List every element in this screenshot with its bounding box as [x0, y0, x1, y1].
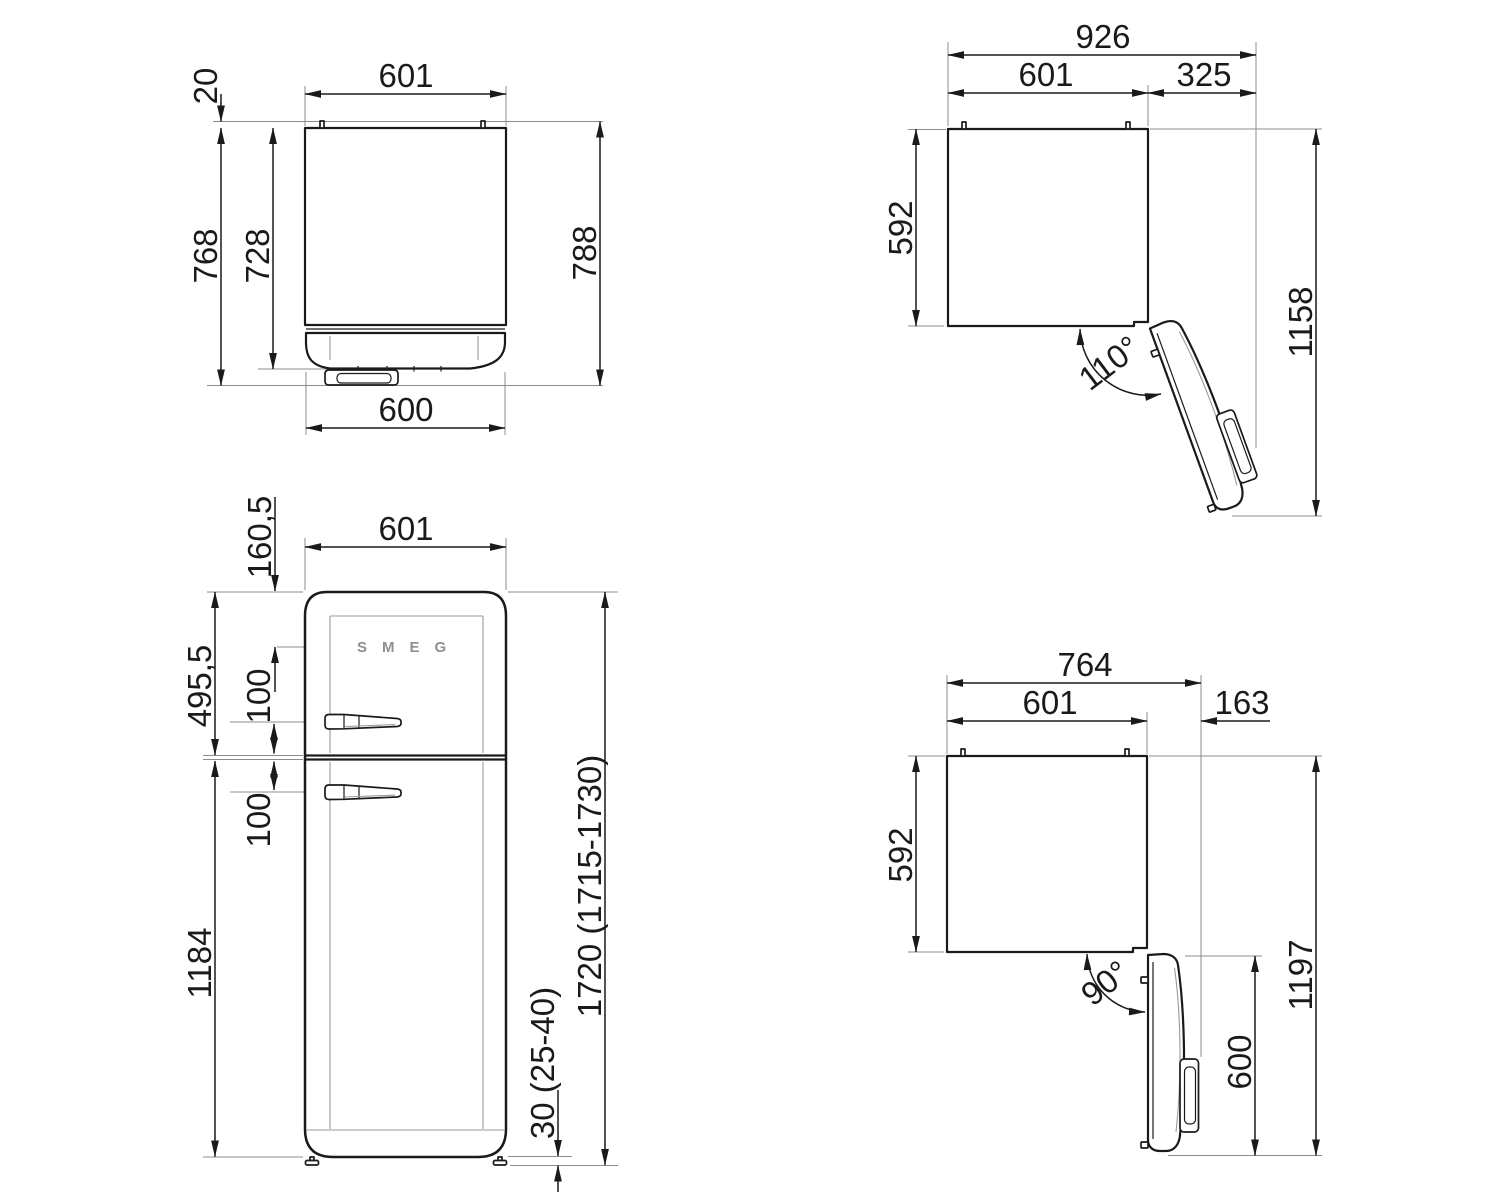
dimension-drawing-page: 601 600 20 768 728 788 926 601: [0, 0, 1500, 1200]
dim-opening-angle: 90°: [1074, 953, 1136, 1013]
dim-cabinet-depth: 592: [882, 200, 919, 255]
view-top-closed: 601 600 20 768 728 788: [187, 57, 603, 435]
cabinet-top-view: [948, 129, 1148, 326]
dim-feet-height: 30 (25-40): [524, 987, 561, 1139]
adjustable-foot: [494, 1157, 507, 1165]
smeg-logo: SMEG: [357, 639, 461, 656]
hinge-pin: [962, 122, 966, 129]
cabinet-top-view: [305, 128, 506, 325]
adjustable-foot: [306, 1157, 319, 1165]
dim-door-width: 600: [378, 391, 433, 428]
dim-freezer-door-height: 495,5: [181, 645, 218, 728]
dim-door-swing-extension: 163: [1214, 684, 1269, 721]
door-open-110: [1143, 310, 1264, 515]
door-open-90: [1141, 954, 1199, 1151]
dim-hinge-pin-depth: 20: [187, 68, 224, 105]
dim-opening-angle: 110°: [1072, 328, 1147, 397]
dim-door-width: 600: [1221, 1034, 1258, 1089]
dim-lower-handle-offset: 100: [240, 792, 277, 847]
dim-overall-height: 1720 (1715-1730): [571, 755, 608, 1017]
hinge-pin: [961, 749, 965, 756]
dim-overall-depth: 788: [566, 225, 603, 280]
view-top-open-110: 926 601 325 592 1158 110°: [882, 18, 1322, 516]
dim-upper-handle-offset: 100: [240, 668, 277, 723]
hinge-pin: [1125, 749, 1129, 756]
hinge-pin: [481, 121, 485, 128]
door-closed-top-view: [306, 329, 505, 385]
dim-overall-depth: 1197: [1282, 940, 1319, 1011]
dim-overall-width: 764: [1057, 646, 1112, 683]
refrigerator-dimension-drawing: 601 600 20 768 728 788 926 601: [0, 0, 1500, 1200]
dim-width: 601: [1022, 684, 1077, 721]
cabinet-top-view: [947, 756, 1147, 952]
view-top-open-90: 764 601 163 592 600 1197 90°: [882, 646, 1322, 1156]
dim-width: 601: [378, 510, 433, 547]
view-front: SMEG 601 160,5 495,5 100 100 1184 1720 (…: [181, 496, 618, 1192]
dim-top-to-logo: 160,5: [241, 496, 278, 579]
refrigerator-front-outline: [305, 592, 506, 1157]
dim-fridge-door-height: 1184: [181, 928, 218, 999]
hinge-pin: [320, 121, 324, 128]
hinge-pin: [1126, 122, 1130, 129]
dim-overall-width: 926: [1075, 18, 1130, 55]
dim-overall-depth: 1158: [1282, 287, 1319, 358]
dim-width: 601: [1018, 56, 1073, 93]
dim-cabinet-depth: 592: [882, 827, 919, 882]
dim-door-swing-extension: 325: [1176, 56, 1231, 93]
dim-width: 601: [378, 57, 433, 94]
dim-cabinet-depth: 728: [239, 228, 276, 283]
dim-depth-with-door: 768: [187, 228, 224, 283]
